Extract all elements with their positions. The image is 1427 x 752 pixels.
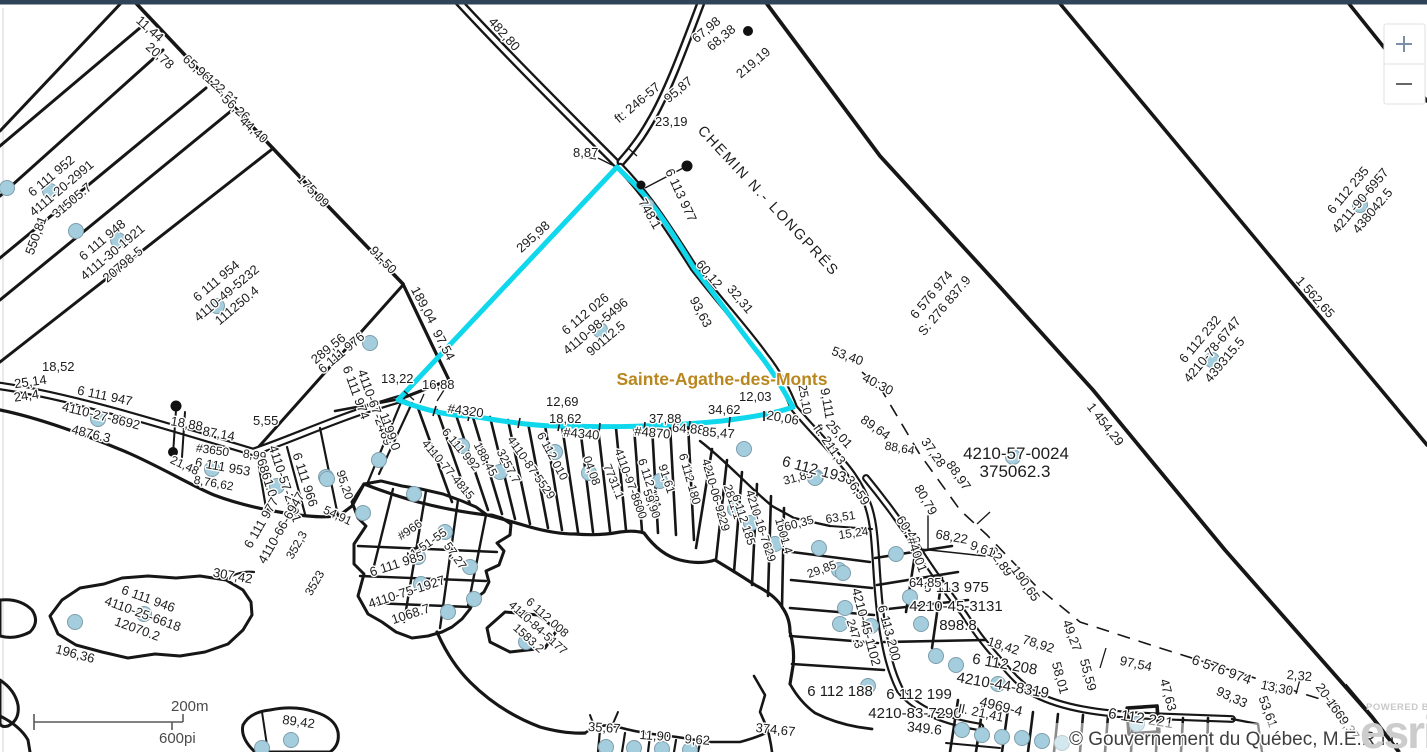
svg-text:5,55: 5,55 xyxy=(253,413,278,428)
svg-text:9,62: 9,62 xyxy=(684,731,710,748)
svg-text:375062.3: 375062.3 xyxy=(980,462,1051,481)
svg-text:200m: 200m xyxy=(171,698,209,715)
svg-text:6 112 199: 6 112 199 xyxy=(886,686,952,703)
svg-text:16,88: 16,88 xyxy=(422,377,455,392)
svg-text:34,62: 34,62 xyxy=(708,402,741,417)
svg-text:13,22: 13,22 xyxy=(381,371,414,386)
svg-text:8,87: 8,87 xyxy=(573,145,598,160)
svg-text:23,19: 23,19 xyxy=(655,114,688,129)
svg-text:64,85: 64,85 xyxy=(909,575,942,590)
svg-text:12,03: 12,03 xyxy=(739,389,772,404)
svg-text:35,67: 35,67 xyxy=(588,719,622,736)
svg-text:esri: esri xyxy=(1360,706,1427,752)
svg-text:85,47: 85,47 xyxy=(702,424,736,442)
svg-text:© Gouvernement du Québec, M.E.: © Gouvernement du Québec, M.E.R.N. xyxy=(1069,729,1400,750)
svg-text:4210-57-0024: 4210-57-0024 xyxy=(963,444,1069,463)
svg-text:#4340: #4340 xyxy=(563,424,600,442)
svg-text:Sainte-Agathe-des-Monts: Sainte-Agathe-des-Monts xyxy=(617,369,828,389)
svg-text:#4870: #4870 xyxy=(634,423,671,441)
svg-text:600pi: 600pi xyxy=(159,730,196,747)
svg-text:18,52: 18,52 xyxy=(42,359,75,374)
svg-text:12,69: 12,69 xyxy=(546,394,579,409)
svg-text:4210-45-3131: 4210-45-3131 xyxy=(909,598,1002,615)
svg-text:11,90: 11,90 xyxy=(639,727,672,744)
svg-text:37,88: 37,88 xyxy=(649,411,682,426)
svg-text:2,32: 2,32 xyxy=(1286,667,1313,684)
svg-text:6 112 188: 6 112 188 xyxy=(807,683,873,700)
svg-text:898.8: 898.8 xyxy=(939,617,977,634)
